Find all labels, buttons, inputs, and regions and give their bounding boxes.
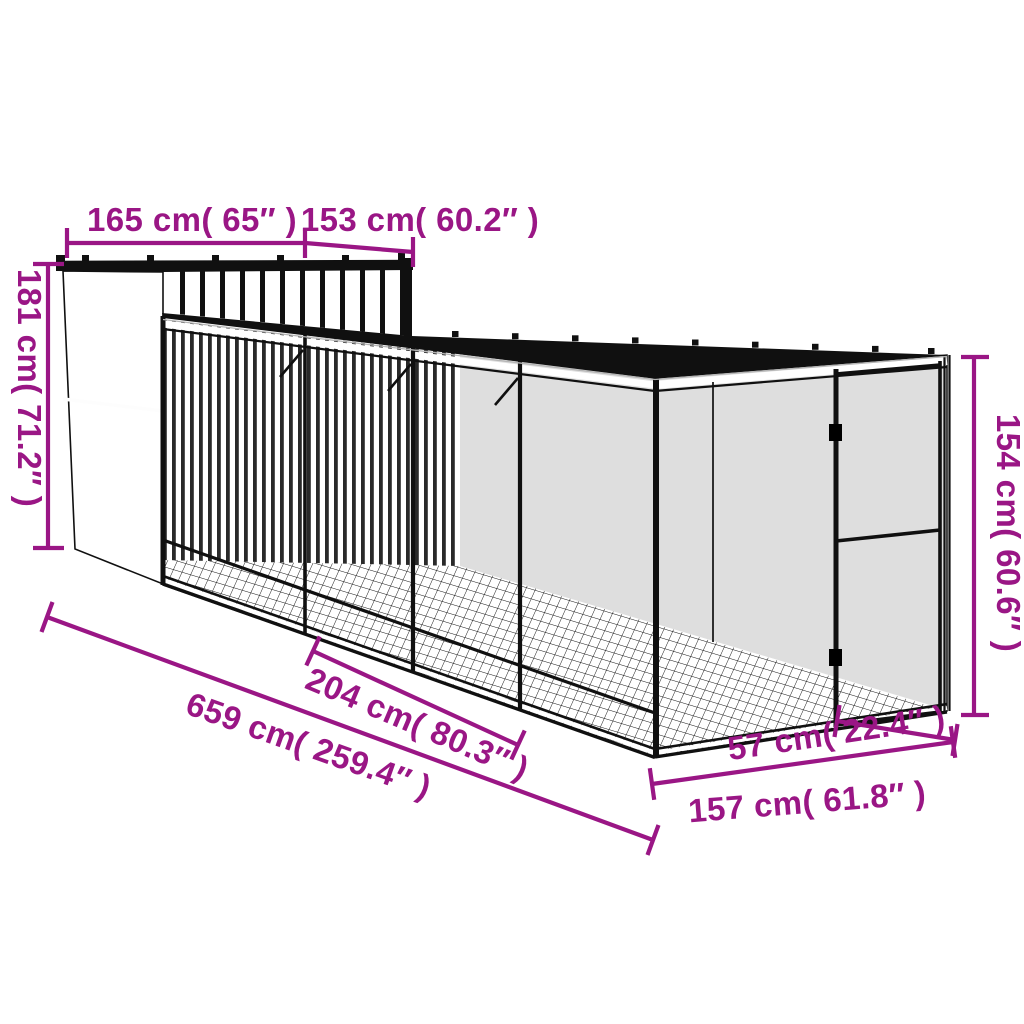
roof-bolt — [82, 255, 89, 262]
house-wall-seam — [63, 399, 163, 411]
roof-bolt — [398, 253, 405, 260]
dim-line-run-height — [961, 357, 989, 715]
house-side-wall — [63, 271, 163, 584]
dim-label-run-height: 154 cm( 60.6″ ) — [990, 414, 1024, 652]
house-roof-ridge — [56, 261, 413, 262]
dim-house-depth: 153 cm( 60.2″ ) — [301, 201, 539, 267]
roof-bolt — [632, 337, 639, 343]
coop-structure — [56, 253, 950, 758]
dim-label-house-height: 181 cm( 71.2″ ) — [11, 269, 48, 507]
door-hinge-top — [829, 424, 842, 441]
house-side-wall-panel — [63, 271, 163, 584]
dim-label-house-depth: 153 cm( 60.2″ ) — [301, 201, 539, 238]
roof-bolt — [928, 348, 935, 354]
roof-bolt — [512, 333, 519, 339]
roof-bolt — [872, 346, 879, 352]
dim-run-height: 154 cm( 60.6″ ) — [961, 357, 1024, 715]
roof-bolt — [572, 335, 579, 341]
roof-bolt — [452, 331, 459, 337]
dim-label-end-width: 157 cm( 61.8″ ) — [687, 774, 927, 830]
dim-house-height: 181 cm( 71.2″ ) — [11, 264, 64, 548]
dimension-diagram: 165 cm( 65″ ) 153 cm( 60.2″ ) 181 cm( 71… — [0, 0, 1024, 1024]
door-hinge-bottom — [829, 649, 842, 666]
dim-label-house-width: 165 cm( 65″ ) — [87, 201, 297, 238]
roof-end-support-post — [404, 258, 412, 338]
roof-bolt — [342, 255, 349, 262]
dim-house-width: 165 cm( 65″ ) — [67, 201, 305, 258]
roof-bolt — [277, 255, 284, 262]
roof-bolt — [752, 342, 759, 348]
roof-bolt — [212, 255, 219, 262]
roof-bolt — [147, 255, 154, 262]
roof-bolt — [692, 340, 699, 346]
roof-bolt — [812, 344, 819, 350]
